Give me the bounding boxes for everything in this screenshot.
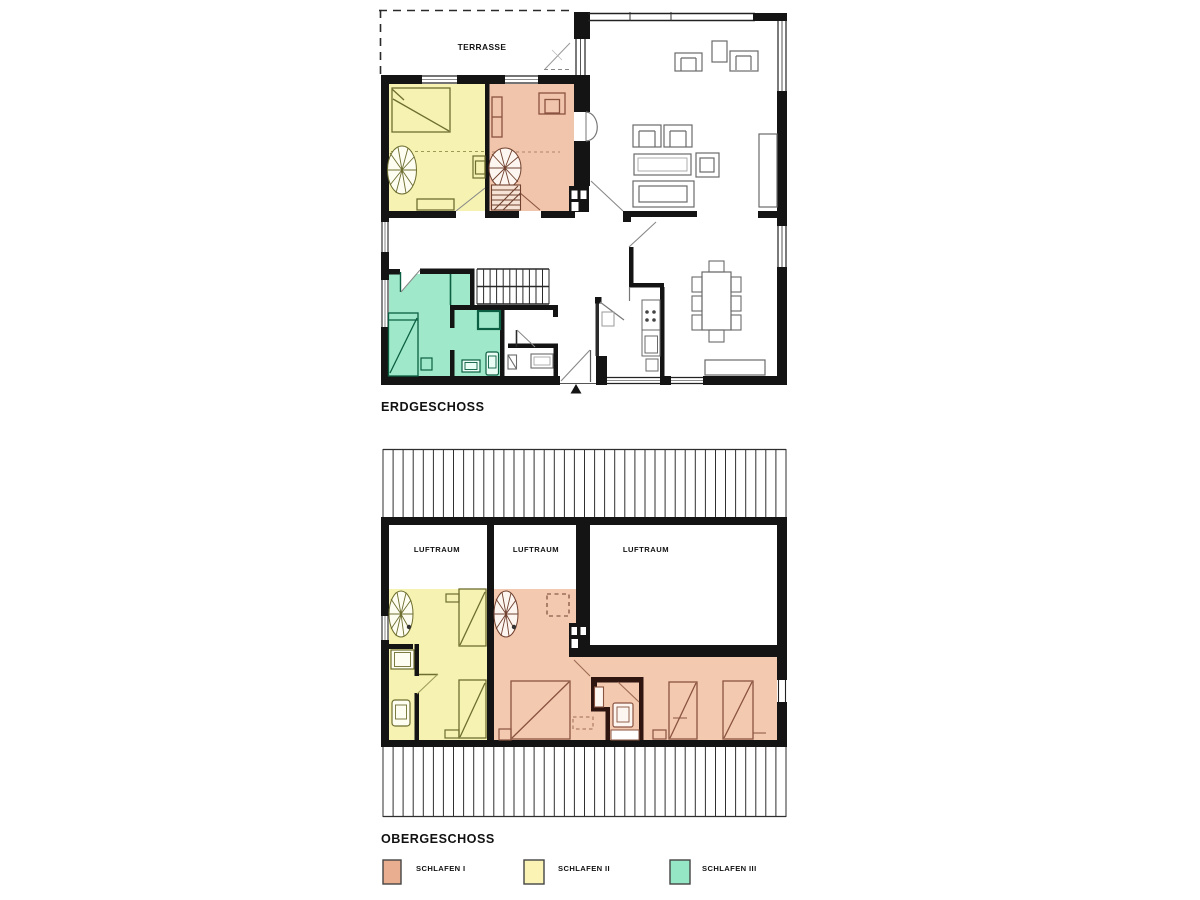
svg-text:ERDGESCHOSS: ERDGESCHOSS — [381, 400, 484, 414]
svg-text:OBERGESCHOSS: OBERGESCHOSS — [381, 832, 495, 846]
svg-text:LUFTRAUM: LUFTRAUM — [414, 545, 460, 554]
svg-text:LUFTRAUM: LUFTRAUM — [623, 545, 669, 554]
svg-text:SCHLAFEN II: SCHLAFEN II — [558, 864, 610, 873]
svg-text:SCHLAFEN I: SCHLAFEN I — [416, 864, 466, 873]
svg-text:LUFTRAUM: LUFTRAUM — [513, 545, 559, 554]
svg-text:SCHLAFEN III: SCHLAFEN III — [702, 864, 757, 873]
svg-text:TERRASSE: TERRASSE — [458, 42, 507, 52]
